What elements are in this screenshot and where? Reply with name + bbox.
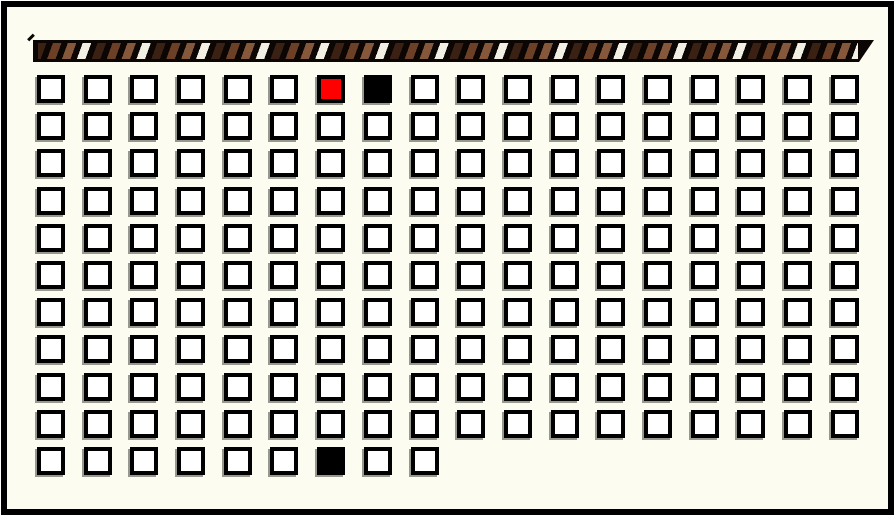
grid-cell[interactable] bbox=[784, 187, 812, 215]
grid-cell[interactable] bbox=[130, 447, 158, 475]
grid-cell[interactable] bbox=[130, 335, 158, 363]
grid-cell[interactable] bbox=[691, 149, 719, 177]
grid-cell[interactable] bbox=[551, 149, 579, 177]
grid-cell[interactable] bbox=[644, 112, 672, 140]
grid-cell[interactable] bbox=[130, 224, 158, 252]
grid-cell[interactable] bbox=[644, 373, 672, 401]
grid-cell[interactable] bbox=[364, 112, 392, 140]
grid-cell[interactable] bbox=[224, 410, 252, 438]
grid-cell[interactable] bbox=[644, 75, 672, 103]
grid-cell[interactable] bbox=[224, 112, 252, 140]
grid-cell[interactable] bbox=[504, 149, 532, 177]
grid-cell[interactable] bbox=[411, 298, 439, 326]
grid-cell[interactable] bbox=[84, 112, 112, 140]
grid-cell[interactable] bbox=[364, 298, 392, 326]
grid-cell[interactable] bbox=[504, 298, 532, 326]
grid-cell[interactable] bbox=[504, 112, 532, 140]
grid-cell[interactable] bbox=[270, 224, 298, 252]
grid-cell[interactable] bbox=[504, 75, 532, 103]
grid-cell[interactable] bbox=[364, 447, 392, 475]
grid-cell[interactable] bbox=[551, 298, 579, 326]
grid-cell[interactable] bbox=[691, 224, 719, 252]
grid-cell[interactable] bbox=[364, 224, 392, 252]
grid-cell[interactable] bbox=[784, 112, 812, 140]
grid-cell[interactable] bbox=[691, 112, 719, 140]
grid-cell[interactable] bbox=[831, 187, 859, 215]
grid-cell[interactable] bbox=[737, 335, 765, 363]
grid-cell[interactable] bbox=[737, 75, 765, 103]
grid-cell[interactable] bbox=[270, 447, 298, 475]
grid-cell[interactable] bbox=[504, 373, 532, 401]
grid-cell[interactable] bbox=[37, 187, 65, 215]
grid-cell[interactable] bbox=[37, 261, 65, 289]
grid-cell[interactable] bbox=[597, 149, 625, 177]
grid-cell[interactable] bbox=[270, 298, 298, 326]
grid-cell[interactable] bbox=[224, 447, 252, 475]
grid-cell[interactable] bbox=[270, 261, 298, 289]
grid-cell[interactable] bbox=[130, 410, 158, 438]
grid-cell[interactable] bbox=[177, 298, 205, 326]
grid-cell[interactable] bbox=[411, 261, 439, 289]
grid-cell[interactable] bbox=[691, 75, 719, 103]
grid-cell[interactable] bbox=[737, 261, 765, 289]
grid-cell[interactable] bbox=[224, 298, 252, 326]
grid-cell[interactable] bbox=[411, 373, 439, 401]
grid-cell[interactable] bbox=[364, 335, 392, 363]
grid-cell[interactable] bbox=[691, 187, 719, 215]
grid-cell[interactable] bbox=[270, 112, 298, 140]
grid-cell[interactable] bbox=[84, 373, 112, 401]
grid-cell[interactable] bbox=[831, 149, 859, 177]
grid-cell[interactable] bbox=[270, 187, 298, 215]
grid-cell[interactable] bbox=[130, 373, 158, 401]
grid-cell[interactable] bbox=[644, 187, 672, 215]
grid-cell[interactable] bbox=[411, 447, 439, 475]
grid-cell[interactable] bbox=[37, 75, 65, 103]
grid-cell[interactable] bbox=[597, 298, 625, 326]
grid-cell[interactable] bbox=[551, 187, 579, 215]
grid-cell[interactable] bbox=[177, 373, 205, 401]
grid-cell[interactable] bbox=[737, 224, 765, 252]
grid-cell[interactable] bbox=[84, 149, 112, 177]
grid-cell[interactable] bbox=[784, 261, 812, 289]
grid-cell[interactable] bbox=[177, 447, 205, 475]
grid-cell[interactable] bbox=[737, 112, 765, 140]
grid-cell[interactable] bbox=[457, 224, 485, 252]
grid-cell[interactable] bbox=[784, 75, 812, 103]
grid-cell[interactable] bbox=[831, 224, 859, 252]
grid-cell[interactable] bbox=[644, 149, 672, 177]
grid-cell[interactable] bbox=[597, 410, 625, 438]
grid-cell[interactable] bbox=[457, 112, 485, 140]
grid-cell[interactable] bbox=[831, 261, 859, 289]
grid-cell[interactable] bbox=[177, 149, 205, 177]
grid-cell[interactable] bbox=[504, 261, 532, 289]
grid-cell[interactable] bbox=[691, 410, 719, 438]
grid-cell[interactable] bbox=[364, 149, 392, 177]
grid-cell[interactable] bbox=[504, 335, 532, 363]
grid-cell[interactable] bbox=[130, 149, 158, 177]
grid-cell[interactable] bbox=[37, 373, 65, 401]
grid-cell[interactable] bbox=[597, 112, 625, 140]
grid-cell[interactable] bbox=[177, 112, 205, 140]
grid-cell[interactable] bbox=[130, 187, 158, 215]
grid-cell[interactable] bbox=[130, 75, 158, 103]
grid-cell[interactable] bbox=[130, 298, 158, 326]
grid-cell[interactable] bbox=[691, 298, 719, 326]
grid-cell[interactable] bbox=[504, 224, 532, 252]
grid-cell[interactable] bbox=[597, 373, 625, 401]
grid-cell[interactable] bbox=[84, 224, 112, 252]
grid-cell[interactable] bbox=[224, 335, 252, 363]
grid-cell[interactable] bbox=[644, 298, 672, 326]
grid-cell[interactable] bbox=[317, 149, 345, 177]
grid-cell[interactable] bbox=[37, 410, 65, 438]
grid-cell[interactable] bbox=[37, 149, 65, 177]
grid-cell[interactable] bbox=[691, 335, 719, 363]
screenshot-stage bbox=[0, 0, 896, 517]
grid-cell[interactable] bbox=[364, 410, 392, 438]
grid-cell[interactable] bbox=[784, 224, 812, 252]
rope-stripes-pattern bbox=[38, 43, 858, 59]
grid-cell[interactable] bbox=[84, 298, 112, 326]
grid-cell-red[interactable] bbox=[317, 75, 345, 103]
grid-cell[interactable] bbox=[317, 298, 345, 326]
grid-cell[interactable] bbox=[177, 75, 205, 103]
grid-cell[interactable] bbox=[37, 112, 65, 140]
grid-cell[interactable] bbox=[411, 112, 439, 140]
grid-cell[interactable] bbox=[644, 335, 672, 363]
grid-cell[interactable] bbox=[84, 187, 112, 215]
grid-cell[interactable] bbox=[270, 75, 298, 103]
grid-cell[interactable] bbox=[457, 75, 485, 103]
grid-cell[interactable] bbox=[551, 410, 579, 438]
grid-cell[interactable] bbox=[317, 187, 345, 215]
grid-cell[interactable] bbox=[691, 373, 719, 401]
grid-cell[interactable] bbox=[784, 149, 812, 177]
grid-cell[interactable] bbox=[457, 335, 485, 363]
grid-cell-black[interactable] bbox=[364, 75, 392, 103]
grid-cell[interactable] bbox=[784, 298, 812, 326]
grid-cell[interactable] bbox=[37, 335, 65, 363]
grid-cell[interactable] bbox=[270, 410, 298, 438]
grid-cell[interactable] bbox=[597, 335, 625, 363]
grid-cell[interactable] bbox=[224, 149, 252, 177]
grid-cell[interactable] bbox=[831, 335, 859, 363]
grid-cell[interactable] bbox=[317, 373, 345, 401]
grid-cell[interactable] bbox=[411, 335, 439, 363]
grid-cell[interactable] bbox=[551, 335, 579, 363]
grid-cell[interactable] bbox=[411, 224, 439, 252]
grid-cell[interactable] bbox=[364, 373, 392, 401]
grid-cell[interactable] bbox=[737, 410, 765, 438]
grid-cell[interactable] bbox=[457, 373, 485, 401]
grid-cell[interactable] bbox=[224, 187, 252, 215]
grid-cell[interactable] bbox=[177, 410, 205, 438]
grid-cell[interactable] bbox=[551, 261, 579, 289]
grid-cell[interactable] bbox=[784, 373, 812, 401]
game-panel bbox=[1, 1, 894, 515]
grid-cell[interactable] bbox=[737, 373, 765, 401]
board-grid bbox=[37, 75, 859, 475]
grid-cell[interactable] bbox=[691, 261, 719, 289]
grid-cell[interactable] bbox=[224, 224, 252, 252]
grid-cell-black[interactable] bbox=[317, 447, 345, 475]
grid-cell[interactable] bbox=[270, 335, 298, 363]
grid-cell[interactable] bbox=[597, 187, 625, 215]
grid-cell[interactable] bbox=[84, 261, 112, 289]
grid-cell[interactable] bbox=[177, 261, 205, 289]
grid-cell[interactable] bbox=[411, 75, 439, 103]
grid-cell[interactable] bbox=[644, 261, 672, 289]
grid-cell[interactable] bbox=[737, 298, 765, 326]
grid-cell[interactable] bbox=[411, 410, 439, 438]
grid-cell[interactable] bbox=[270, 149, 298, 177]
grid-cell[interactable] bbox=[831, 298, 859, 326]
grid-cell[interactable] bbox=[831, 112, 859, 140]
grid-cell[interactable] bbox=[317, 410, 345, 438]
grid-cell[interactable] bbox=[317, 335, 345, 363]
grid-cell[interactable] bbox=[270, 373, 298, 401]
grid-cell[interactable] bbox=[831, 75, 859, 103]
grid-cell[interactable] bbox=[551, 75, 579, 103]
grid-cell[interactable] bbox=[317, 224, 345, 252]
grid-cell[interactable] bbox=[37, 224, 65, 252]
grid-cell[interactable] bbox=[84, 447, 112, 475]
grid-cell[interactable] bbox=[364, 261, 392, 289]
striped-rope-bar bbox=[33, 40, 874, 62]
grid-cell[interactable] bbox=[84, 410, 112, 438]
grid-cell[interactable] bbox=[130, 112, 158, 140]
grid-cell[interactable] bbox=[130, 261, 158, 289]
grid-cell[interactable] bbox=[84, 335, 112, 363]
grid-cell[interactable] bbox=[504, 187, 532, 215]
grid-cell[interactable] bbox=[84, 75, 112, 103]
grid-cell[interactable] bbox=[457, 410, 485, 438]
grid-cell[interactable] bbox=[411, 149, 439, 177]
grid-cell[interactable] bbox=[551, 373, 579, 401]
grid-cell[interactable] bbox=[597, 224, 625, 252]
grid-cell[interactable] bbox=[784, 410, 812, 438]
grid-cell[interactable] bbox=[457, 149, 485, 177]
grid-cell[interactable] bbox=[831, 373, 859, 401]
grid-cell[interactable] bbox=[597, 261, 625, 289]
grid-cell[interactable] bbox=[644, 410, 672, 438]
grid-cell[interactable] bbox=[597, 75, 625, 103]
grid-cell[interactable] bbox=[37, 298, 65, 326]
grid-cell[interactable] bbox=[457, 298, 485, 326]
grid-cell[interactable] bbox=[457, 187, 485, 215]
grid-cell[interactable] bbox=[737, 187, 765, 215]
grid-cell[interactable] bbox=[411, 187, 439, 215]
grid-cell[interactable] bbox=[457, 261, 485, 289]
grid-cell[interactable] bbox=[551, 224, 579, 252]
grid-cell[interactable] bbox=[784, 335, 812, 363]
grid-cell[interactable] bbox=[504, 410, 532, 438]
grid-cell[interactable] bbox=[551, 112, 579, 140]
grid-cell[interactable] bbox=[224, 373, 252, 401]
grid-cell[interactable] bbox=[317, 112, 345, 140]
grid-cell[interactable] bbox=[177, 335, 205, 363]
grid-cell[interactable] bbox=[177, 224, 205, 252]
grid-cell[interactable] bbox=[224, 75, 252, 103]
grid-cell[interactable] bbox=[644, 224, 672, 252]
grid-cell[interactable] bbox=[364, 187, 392, 215]
grid-cell[interactable] bbox=[831, 410, 859, 438]
grid-cell[interactable] bbox=[317, 261, 345, 289]
grid-cell[interactable] bbox=[177, 187, 205, 215]
grid-cell[interactable] bbox=[37, 447, 65, 475]
grid-cell[interactable] bbox=[224, 261, 252, 289]
grid-cell[interactable] bbox=[737, 149, 765, 177]
